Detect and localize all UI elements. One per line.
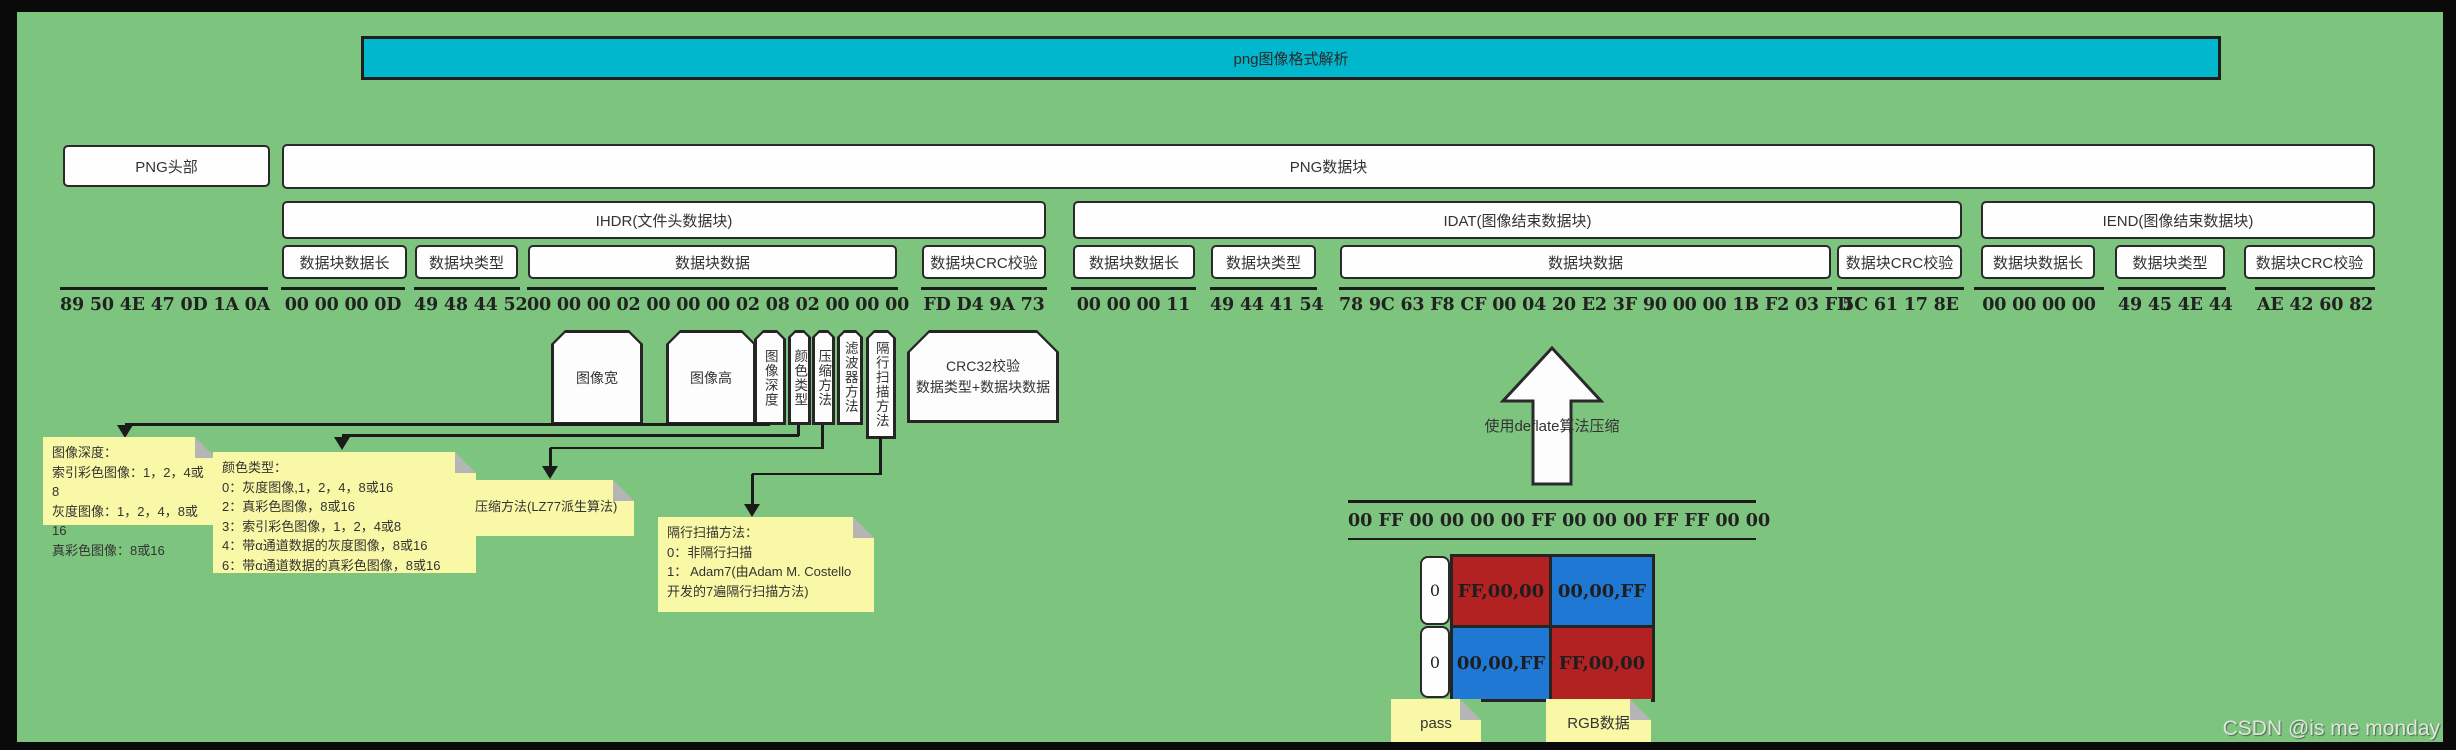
connector-interlace-arrow <box>744 504 760 517</box>
ihdr-data-label-box: 数据块数据 <box>528 245 897 279</box>
iend-crc-label: 数据块CRC校验 <box>2256 252 2364 273</box>
note-color-type: 颜色类型： 0：灰度图像,1，2，4，8或16 2：真彩色图像，8或16 3：索… <box>213 452 476 573</box>
csdn-watermark: CSDN @is me monday <box>2223 717 2440 741</box>
field-crc32-line1: CRC32校验 <box>946 356 1020 377</box>
idat-data-label-box: 数据块数据 <box>1340 245 1831 279</box>
field-interlace-label: 隔行扫描方法 <box>874 341 888 428</box>
note-color-type-line3: 2：真彩色图像，8或16 <box>222 497 467 517</box>
field-crc32-line2: 数据类型+数据块数据 <box>916 377 1050 398</box>
hex-ihdr-data: 00 00 00 02 00 00 00 02 08 02 00 00 00 <box>527 287 898 315</box>
iend-title: IEND(图像结束数据块) <box>2103 210 2254 231</box>
ihdr-title: IHDR(文件头数据块) <box>596 210 733 231</box>
note-interlace-line1: 隔行扫描方法： <box>667 523 865 543</box>
iend-length-label-box: 数据块数据长 <box>1981 245 2095 279</box>
frame-border-top <box>0 0 2456 12</box>
png-header-box: PNG头部 <box>63 145 270 187</box>
hex-iend-crc: AE 42 60 82 <box>2255 287 2375 315</box>
note-fold-icon <box>455 452 476 473</box>
pixel-r1c1: FF,00,00 <box>1453 557 1549 625</box>
connector-compression-arrow <box>542 466 558 479</box>
hex-idat-type: 49 44 41 54 <box>1210 287 1317 315</box>
connector-color-type-arrow <box>334 437 350 450</box>
field-bit-depth-label: 图像深度 <box>763 349 777 407</box>
note-interlace: 隔行扫描方法： 0：非隔行扫描 1： Adam7(由Adam M. Costel… <box>658 517 874 612</box>
pixel-r2c1: 00,00,FF <box>1453 628 1549 699</box>
field-filter-method: 滤波器方法 <box>837 330 863 425</box>
note-interlace-line2: 0：非隔行扫描 <box>667 543 865 563</box>
iend-type-label-box: 数据块类型 <box>2115 245 2225 279</box>
idat-crc-label: 数据块CRC校验 <box>1846 252 1954 273</box>
field-interlace: 隔行扫描方法 <box>866 330 896 439</box>
pixel-r2c2: FF,00,00 <box>1552 628 1652 699</box>
note-color-type-line4: 3：索引彩色图像，1，2，4或8 <box>222 517 467 537</box>
field-image-height-label: 图像高 <box>690 368 732 388</box>
page-title: png图像格式解析 <box>1233 48 1348 69</box>
note-bit-depth: 图像深度： 索引彩色图像：1，2，4或8 灰度图像：1，2，4，8或16 真彩色… <box>43 437 216 525</box>
field-color-type: 颜色类型 <box>788 330 811 425</box>
png-chunks-label: PNG数据块 <box>1290 156 1368 177</box>
hex-idat-data: 78 9C 63 F8 CF 00 04 20 E2 3F 90 00 00 1… <box>1339 287 1832 315</box>
png-header-label: PNG头部 <box>135 156 198 177</box>
note-color-type-line6: 6：带α通道数据的真彩色图像，8或16 <box>222 556 467 576</box>
field-image-height: 图像高 <box>666 330 756 425</box>
frame-border-left <box>0 0 17 750</box>
note-interlace-line3: 1： Adam7(由Adam M. Costello <box>667 562 865 582</box>
ihdr-crc-label-box: 数据块CRC校验 <box>922 245 1046 279</box>
note-fold-icon <box>1460 699 1481 720</box>
idat-title-box: IDAT(图像结束数据块) <box>1073 201 1962 239</box>
idat-type-label: 数据块类型 <box>1226 252 1301 273</box>
idat-length-label-box: 数据块数据长 <box>1073 245 1195 279</box>
ihdr-title-box: IHDR(文件头数据块) <box>282 201 1046 239</box>
ihdr-data-label: 数据块数据 <box>675 252 750 273</box>
note-bit-depth-line4: 真彩色图像：8或16 <box>52 541 207 561</box>
field-compression-label: 压缩方法 <box>817 349 831 407</box>
connector-compression-line <box>550 447 823 450</box>
note-fold-icon <box>613 480 634 501</box>
connector-color-type-line <box>342 434 799 437</box>
hex-ihdr-crc: FD D4 9A 73 <box>921 287 1047 315</box>
connector-interlace-shaft <box>751 474 754 505</box>
png-chunks-box: PNG数据块 <box>282 144 2375 189</box>
hex-ihdr-type: 49 48 44 52 <box>414 287 520 315</box>
note-fold-icon <box>853 517 874 538</box>
hex-iend-length: 00 00 00 00 <box>1974 287 2104 315</box>
hex-iend-type: 49 45 4E 44 <box>2118 287 2226 315</box>
frame-border-right <box>2443 0 2456 750</box>
note-color-type-line2: 0：灰度图像,1，2，4，8或16 <box>222 478 467 498</box>
note-color-type-line5: 4：带α通道数据的灰度图像，8或16 <box>222 536 467 556</box>
note-color-type-line1: 颜色类型： <box>222 458 467 478</box>
iend-title-box: IEND(图像结束数据块) <box>1981 201 2375 239</box>
idat-type-label-box: 数据块类型 <box>1211 245 1316 279</box>
filter-byte-row1: 0 <box>1420 556 1450 625</box>
note-bit-depth-line2: 索引彩色图像：1，2，4或8 <box>52 463 207 502</box>
note-rgb-label: RGB数据 <box>1567 713 1630 736</box>
note-compression: 压缩方法(LZ77派生算法) <box>466 480 634 536</box>
iend-length-label: 数据块数据长 <box>1993 252 2083 273</box>
connector-compression-shaft <box>549 448 552 467</box>
idat-data-label: 数据块数据 <box>1548 252 1623 273</box>
field-bit-depth: 图像深度 <box>754 330 786 425</box>
note-pass-label: pass <box>1420 713 1452 736</box>
png-format-diagram: png图像格式解析 PNG头部 PNG数据块 IHDR(文件头数据块) 数据块数… <box>0 0 2456 750</box>
raw-hex-bottom-rule <box>1348 538 1756 541</box>
field-filter-method-label: 滤波器方法 <box>843 341 857 414</box>
title-banner: png图像格式解析 <box>361 36 2221 80</box>
field-compression: 压缩方法 <box>812 330 835 425</box>
connector-interlace-stub <box>879 437 882 475</box>
pixel-r1c2: 00,00,FF <box>1552 557 1652 625</box>
idat-length-label: 数据块数据长 <box>1089 252 1179 273</box>
ihdr-crc-label: 数据块CRC校验 <box>930 252 1038 273</box>
ihdr-length-label-box: 数据块数据长 <box>282 245 407 279</box>
hex-idat-crc: 5C 61 17 8E <box>1837 287 1964 315</box>
hex-idat-length: 00 00 00 11 <box>1071 287 1196 315</box>
idat-raw-hex-block: 00 FF 00 00 00 00 FF 00 00 00 FF FF 00 0… <box>1348 500 1756 540</box>
field-crc32: CRC32校验 数据类型+数据块数据 <box>907 330 1059 423</box>
idat-crc-label-box: 数据块CRC校验 <box>1837 245 1962 279</box>
filter-byte-row2: 0 <box>1420 626 1450 698</box>
connector-interlace-line <box>752 473 881 476</box>
note-interlace-line4: 开发的7遍隔行扫描方法) <box>667 582 865 602</box>
note-compression-line1: 压缩方法(LZ77派生算法) <box>475 497 625 517</box>
iend-crc-label-box: 数据块CRC校验 <box>2244 245 2375 279</box>
iend-type-label: 数据块类型 <box>2132 252 2207 273</box>
field-image-width-label: 图像宽 <box>576 368 618 388</box>
ihdr-length-label: 数据块数据长 <box>299 252 389 273</box>
deflate-arrow-label: 使用deflate算法压缩 <box>1440 415 1664 436</box>
note-bit-depth-line1: 图像深度： <box>52 443 207 463</box>
frame-border-bottom <box>0 742 2456 750</box>
note-bit-depth-line3: 灰度图像：1，2，4，8或16 <box>52 502 207 541</box>
ihdr-type-label-box: 数据块类型 <box>415 245 518 279</box>
note-fold-icon <box>1630 699 1651 720</box>
pixel-grid: FF,00,00 00,00,FF 00,00,FF FF,00,00 <box>1450 554 1655 702</box>
hex-ihdr-length: 00 00 00 0D <box>281 287 405 315</box>
connector-compression-stub <box>821 425 824 449</box>
field-image-width: 图像宽 <box>551 330 643 425</box>
raw-hex-value: 00 FF 00 00 00 00 FF 00 00 00 FF FF 00 0… <box>1348 503 1756 538</box>
hex-png-header: 89 50 4E 47 0D 1A 0A <box>60 287 268 315</box>
field-color-type-label: 颜色类型 <box>793 349 807 407</box>
idat-title: IDAT(图像结束数据块) <box>1443 210 1591 231</box>
ihdr-type-label: 数据块类型 <box>429 252 504 273</box>
